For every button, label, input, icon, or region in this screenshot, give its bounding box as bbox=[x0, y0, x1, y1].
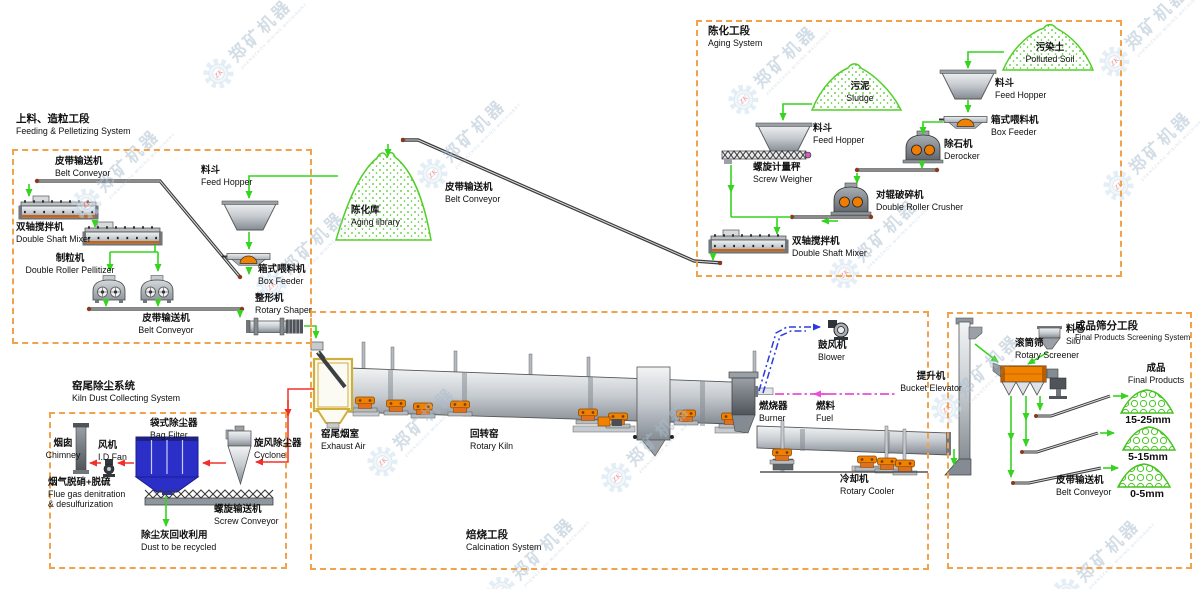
label-belt-conveyor-2: 皮带输送机Belt Conveyor bbox=[120, 314, 212, 335]
label-size-15-25: 15-25mm bbox=[1120, 414, 1176, 426]
label-derocker-zh: 除石机 bbox=[944, 140, 980, 151]
label-dust-recycled-en: Dust to be recycled bbox=[141, 542, 216, 552]
label-aging-library: 陈化库Aging library bbox=[351, 206, 400, 227]
label-burner-en: Burner bbox=[759, 413, 788, 423]
label-box-feeder-1-zh: 箱式喂料机 bbox=[258, 265, 306, 276]
label-double-roller-crusher-zh: 对辊破碎机 bbox=[876, 191, 963, 202]
label-screw-conveyor-en: Screw Conveyor bbox=[214, 516, 279, 526]
label-bag-filter-en: Bag Filter bbox=[150, 430, 198, 440]
label-burner: 燃烧器Burner bbox=[759, 402, 788, 423]
label-flue-gas-en2: & desulfurization bbox=[48, 499, 125, 509]
label-fuel: 燃料Fuel bbox=[816, 402, 835, 423]
label-sludge-en: Sludge bbox=[828, 93, 892, 103]
label-rotary-shaper: 整形机Rotary Shaper bbox=[255, 294, 312, 315]
label-rotary-cooler: 冷却机Rotary Cooler bbox=[840, 475, 894, 496]
label-belt-conveyor-4: 皮带输送机Belt Conveyor bbox=[1056, 476, 1111, 497]
label-rotary-cooler-en: Rotary Cooler bbox=[840, 486, 894, 496]
label-feed-hopper-2: 料斗Feed Hopper bbox=[813, 124, 864, 145]
label-id-fan-zh: 风机 bbox=[98, 441, 127, 452]
label-derocker-en: Derocker bbox=[944, 151, 980, 161]
label-double-roller-pellitizer: 制粒机Double Roller Pellitizer bbox=[14, 254, 126, 275]
label-blower-en: Blower bbox=[818, 352, 847, 362]
label-double-shaft-mixer-2: 双轴搅拌机Double Shaft Mixer bbox=[792, 237, 867, 258]
label-chimney: 烟囱Chimney bbox=[36, 439, 90, 460]
process-flow-diagram: ZK 郑矿机器 ZHENGZHOU MINING MACHINERY ZK 郑矿… bbox=[0, 0, 1200, 589]
label-silo-zh: 料仓 bbox=[1066, 325, 1085, 336]
label-polluted-soil-zh: 污染土 bbox=[1008, 43, 1092, 54]
label-belt-conveyor-1-en: Belt Conveyor bbox=[55, 168, 110, 178]
label-screw-weigher: 螺旋计量秤Screw Weigher bbox=[753, 163, 812, 184]
label-bucket-elevator-zh: 提升机 bbox=[896, 372, 966, 383]
label-blower-zh: 鼓风机 bbox=[818, 341, 847, 352]
label-exhaust-air-en: Exhaust Air bbox=[321, 441, 366, 451]
label-feed-hopper-3-en: Feed Hopper bbox=[995, 90, 1046, 100]
label-flue-gas-zh: 烟气脱硝+脱硫 bbox=[48, 478, 125, 489]
label-feed-hopper-3-zh: 料斗 bbox=[995, 79, 1046, 90]
label-belt-conveyor-3-en: Belt Conveyor bbox=[445, 194, 500, 204]
label-rotary-screener: 滚筒筛Rotary Screener bbox=[1015, 339, 1079, 360]
label-rotary-kiln: 回转窑Rotary Kiln bbox=[470, 430, 513, 451]
label-double-shaft-mixer-1-zh: 双轴搅拌机 bbox=[16, 223, 91, 234]
label-id-fan: 风机I.D.Fan bbox=[98, 441, 127, 462]
label-feed-hopper-2-en: Feed Hopper bbox=[813, 135, 864, 145]
label-polluted-soil: 污染土Polluted Soil bbox=[1008, 43, 1092, 64]
label-belt-conveyor-4-en: Belt Conveyor bbox=[1056, 487, 1111, 497]
label-rotary-screener-en: Rotary Screener bbox=[1015, 350, 1079, 360]
label-screw-conveyor: 螺旋输送机Screw Conveyor bbox=[214, 505, 279, 526]
label-flue-gas: 烟气脱硝+脱硫Flue gas denitration& desulfuriza… bbox=[48, 478, 125, 509]
label-rotary-shaper-zh: 整形机 bbox=[255, 294, 312, 305]
label-screw-weigher-zh: 螺旋计量秤 bbox=[753, 163, 812, 174]
label-belt-conveyor-2-en: Belt Conveyor bbox=[120, 325, 212, 335]
label-burner-zh: 燃烧器 bbox=[759, 402, 788, 413]
label-sludge-zh: 污泥 bbox=[828, 82, 892, 93]
label-bucket-elevator-en: Bucket Elevator bbox=[896, 383, 966, 393]
label-double-roller-pellitizer-zh: 制粒机 bbox=[14, 254, 126, 265]
label-belt-conveyor-3-zh: 皮带输送机 bbox=[445, 183, 500, 194]
label-bucket-elevator: 提升机Bucket Elevator bbox=[896, 372, 966, 393]
label-aging-library-zh: 陈化库 bbox=[351, 206, 400, 217]
label-box-feeder-2-en: Box Feeder bbox=[991, 127, 1039, 137]
label-derocker: 除石机Derocker bbox=[944, 140, 980, 161]
label-cyclone: 旋风除尘器Cyclone bbox=[254, 439, 302, 460]
label-polluted-soil-en: Polluted Soil bbox=[1008, 54, 1092, 64]
label-feed-hopper-3: 料斗Feed Hopper bbox=[995, 79, 1046, 100]
label-final-products-zh: 成品 bbox=[1124, 364, 1188, 375]
label-flue-gas-en: Flue gas denitration bbox=[48, 489, 125, 499]
label-screw-weigher-en: Screw Weigher bbox=[753, 174, 812, 184]
label-double-roller-pellitizer-en: Double Roller Pellitizer bbox=[14, 265, 126, 275]
label-final-products: 成品Final Products bbox=[1124, 364, 1188, 385]
label-double-shaft-mixer-2-en: Double Shaft Mixer bbox=[792, 248, 867, 258]
label-size-5-15: 5-15mm bbox=[1122, 451, 1174, 463]
label-fuel-zh: 燃料 bbox=[816, 402, 835, 413]
label-belt-conveyor-1: 皮带输送机Belt Conveyor bbox=[55, 157, 110, 178]
label-feed-hopper-1-zh: 料斗 bbox=[201, 166, 252, 177]
label-feed-hopper-2-zh: 料斗 bbox=[813, 124, 864, 135]
label-exhaust-air: 窑尾烟室Exhaust Air bbox=[321, 430, 366, 451]
label-belt-conveyor-3: 皮带输送机Belt Conveyor bbox=[445, 183, 500, 204]
label-screw-conveyor-zh: 螺旋输送机 bbox=[214, 505, 279, 516]
label-final-products-en: Final Products bbox=[1124, 375, 1188, 385]
label-blower: 鼓风机Blower bbox=[818, 341, 847, 362]
label-belt-conveyor-1-zh: 皮带输送机 bbox=[55, 157, 110, 168]
label-double-shaft-mixer-1: 双轴搅拌机Double Shaft Mixer bbox=[16, 223, 91, 244]
label-dust-recycled: 除尘灰回收利用Dust to be recycled bbox=[141, 531, 216, 552]
label-cyclone-en: Cyclone bbox=[254, 450, 302, 460]
label-aging-library-en: Aging library bbox=[351, 217, 400, 227]
label-feed-hopper-1-en: Feed Hopper bbox=[201, 177, 252, 187]
label-belt-conveyor-2-zh: 皮带输送机 bbox=[120, 314, 212, 325]
label-size-15-25-text: 15-25mm bbox=[1120, 414, 1176, 426]
label-chimney-en: Chimney bbox=[36, 450, 90, 460]
label-rotary-kiln-en: Rotary Kiln bbox=[470, 441, 513, 451]
label-feed-hopper-1: 料斗Feed Hopper bbox=[201, 166, 252, 187]
label-sludge: 污泥Sludge bbox=[828, 82, 892, 103]
label-rotary-kiln-zh: 回转窑 bbox=[470, 430, 513, 441]
label-dust-recycled-zh: 除尘灰回收利用 bbox=[141, 531, 216, 542]
label-fuel-en: Fuel bbox=[816, 413, 835, 423]
label-size-0-5-text: 0-5mm bbox=[1122, 488, 1172, 500]
labels-layer: 皮带输送机Belt Conveyor料斗Feed Hopper双轴搅拌机Doub… bbox=[0, 0, 1200, 589]
label-double-shaft-mixer-1-en: Double Shaft Mixer bbox=[16, 234, 91, 244]
label-belt-conveyor-4-zh: 皮带输送机 bbox=[1056, 476, 1111, 487]
label-double-roller-crusher-en: Double Roller Crusher bbox=[876, 202, 963, 212]
label-bag-filter-zh: 袋式除尘器 bbox=[150, 419, 198, 430]
label-id-fan-en: I.D.Fan bbox=[98, 452, 127, 462]
label-rotary-cooler-zh: 冷却机 bbox=[840, 475, 894, 486]
label-double-shaft-mixer-2-zh: 双轴搅拌机 bbox=[792, 237, 867, 248]
label-rotary-screener-zh: 滚筒筛 bbox=[1015, 339, 1079, 350]
label-exhaust-air-zh: 窑尾烟室 bbox=[321, 430, 366, 441]
label-chimney-zh: 烟囱 bbox=[36, 439, 90, 450]
label-size-0-5: 0-5mm bbox=[1122, 488, 1172, 500]
label-box-feeder-1-en: Box Feeder bbox=[258, 276, 306, 286]
label-box-feeder-1: 箱式喂料机Box Feeder bbox=[258, 265, 306, 286]
label-double-roller-crusher: 对辊破碎机Double Roller Crusher bbox=[876, 191, 963, 212]
label-bag-filter: 袋式除尘器Bag Filter bbox=[150, 419, 198, 440]
label-box-feeder-2-zh: 箱式喂料机 bbox=[991, 116, 1039, 127]
label-box-feeder-2: 箱式喂料机Box Feeder bbox=[991, 116, 1039, 137]
label-size-5-15-text: 5-15mm bbox=[1122, 451, 1174, 463]
label-rotary-shaper-en: Rotary Shaper bbox=[255, 305, 312, 315]
label-cyclone-zh: 旋风除尘器 bbox=[254, 439, 302, 450]
